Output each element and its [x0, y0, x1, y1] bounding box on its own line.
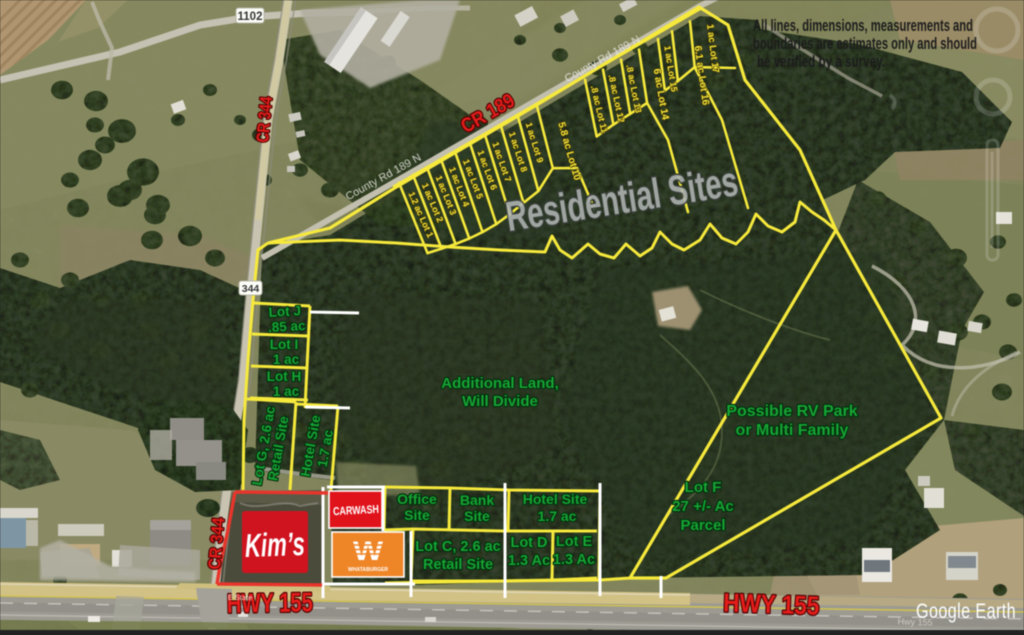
svg-text:Site: Site	[464, 508, 490, 524]
svg-text:Lot I: Lot I	[270, 337, 299, 352]
svg-text:Site: Site	[404, 507, 430, 523]
svg-text:CR 344: CR 344	[253, 95, 276, 143]
svg-text:HWY 155: HWY 155	[227, 587, 314, 618]
svg-text:1102: 1102	[238, 11, 263, 23]
svg-text:1 ac: 1 ac	[273, 384, 300, 399]
svg-text:W: W	[353, 536, 384, 566]
svg-text:Parcel: Parcel	[680, 517, 725, 534]
svg-text:Additional Land,: Additional Land,	[441, 375, 559, 392]
svg-text:Possible RV Park: Possible RV Park	[726, 403, 857, 420]
svg-text:HWY 155: HWY 155	[723, 587, 820, 620]
svg-text:1.3 Ac: 1.3 Ac	[553, 552, 595, 568]
svg-text:Lot F: Lot F	[685, 479, 722, 496]
svg-text:be verified by a survey.: be verified by a survey.	[757, 53, 885, 71]
svg-text:Lot C, 2.6 ac: Lot C, 2.6 ac	[415, 539, 500, 555]
svg-text:Lot E: Lot E	[556, 534, 593, 550]
svg-text:Lot D: Lot D	[510, 535, 547, 551]
svg-text:All lines, dimensions, measure: All lines, dimensions, measurements and	[753, 17, 973, 35]
svg-text:Retail Site: Retail Site	[423, 557, 493, 573]
svg-text:27 +/- Ac: 27 +/- Ac	[672, 498, 734, 515]
svg-text:Kim’s: Kim’s	[244, 525, 305, 564]
svg-text:344: 344	[242, 283, 260, 295]
svg-text:boundaries are estimates only: boundaries are estimates only and should	[753, 35, 977, 53]
svg-text:.85 ac: .85 ac	[268, 318, 307, 335]
svg-text:Lot J: Lot J	[268, 303, 301, 320]
svg-text:E State: E State	[228, 593, 253, 602]
svg-text:or Multi Family: or Multi Family	[736, 422, 849, 439]
svg-text:Bank: Bank	[460, 492, 494, 508]
svg-text:Lot H: Lot H	[267, 369, 302, 384]
svg-text:Will Divide: Will Divide	[462, 393, 538, 410]
svg-text:CARWASH: CARWASH	[333, 504, 380, 518]
svg-text:1.3 Ac: 1.3 Ac	[508, 553, 550, 569]
svg-text:Google Earth: Google Earth	[916, 600, 1016, 623]
svg-text:Hotel Site: Hotel Site	[523, 491, 588, 507]
svg-text:1 ac: 1 ac	[273, 352, 300, 367]
svg-text:WHATABURGER: WHATABURGER	[348, 567, 388, 573]
svg-text:Office: Office	[397, 491, 437, 507]
svg-text:1.7 ac: 1.7 ac	[538, 508, 577, 524]
